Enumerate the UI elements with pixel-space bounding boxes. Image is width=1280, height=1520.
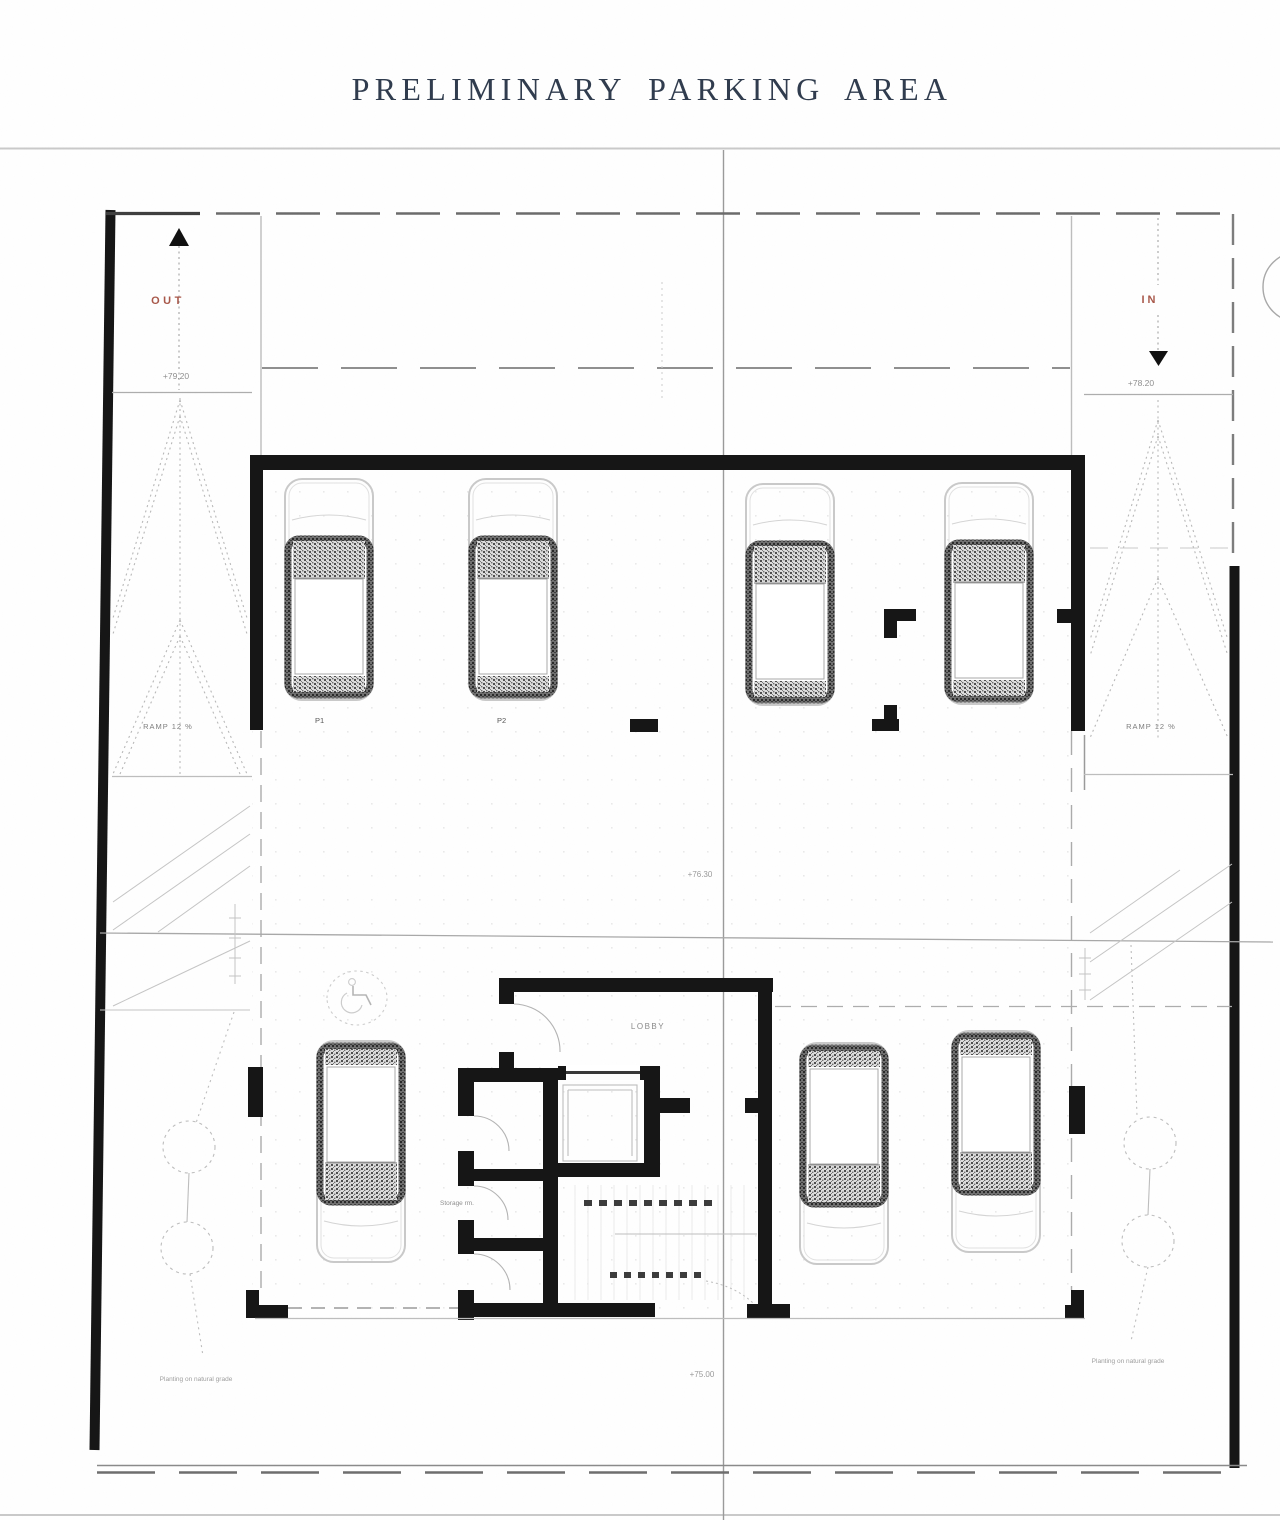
svg-text:+78.20: +78.20 [1128, 378, 1155, 388]
svg-text:RAMP 12 %: RAMP 12 % [1126, 722, 1176, 731]
svg-text:Planting on natural grade: Planting on natural grade [160, 1376, 233, 1383]
svg-text:+76.30: +76.30 [688, 870, 713, 879]
svg-text:IN: IN [1142, 294, 1159, 306]
svg-text:P1: P1 [315, 716, 324, 725]
svg-text:OUT: OUT [151, 295, 185, 307]
svg-text:P2: P2 [497, 716, 506, 725]
svg-text:RAMP 12 %: RAMP 12 % [143, 722, 193, 731]
svg-text:+75.00: +75.00 [690, 1370, 715, 1379]
svg-text:Planting on natural grade: Planting on natural grade [1092, 1358, 1165, 1365]
svg-text:LOBBY: LOBBY [631, 1022, 665, 1031]
svg-text:Storage rm.: Storage rm. [440, 1200, 474, 1207]
svg-text:+79.20: +79.20 [163, 371, 190, 381]
